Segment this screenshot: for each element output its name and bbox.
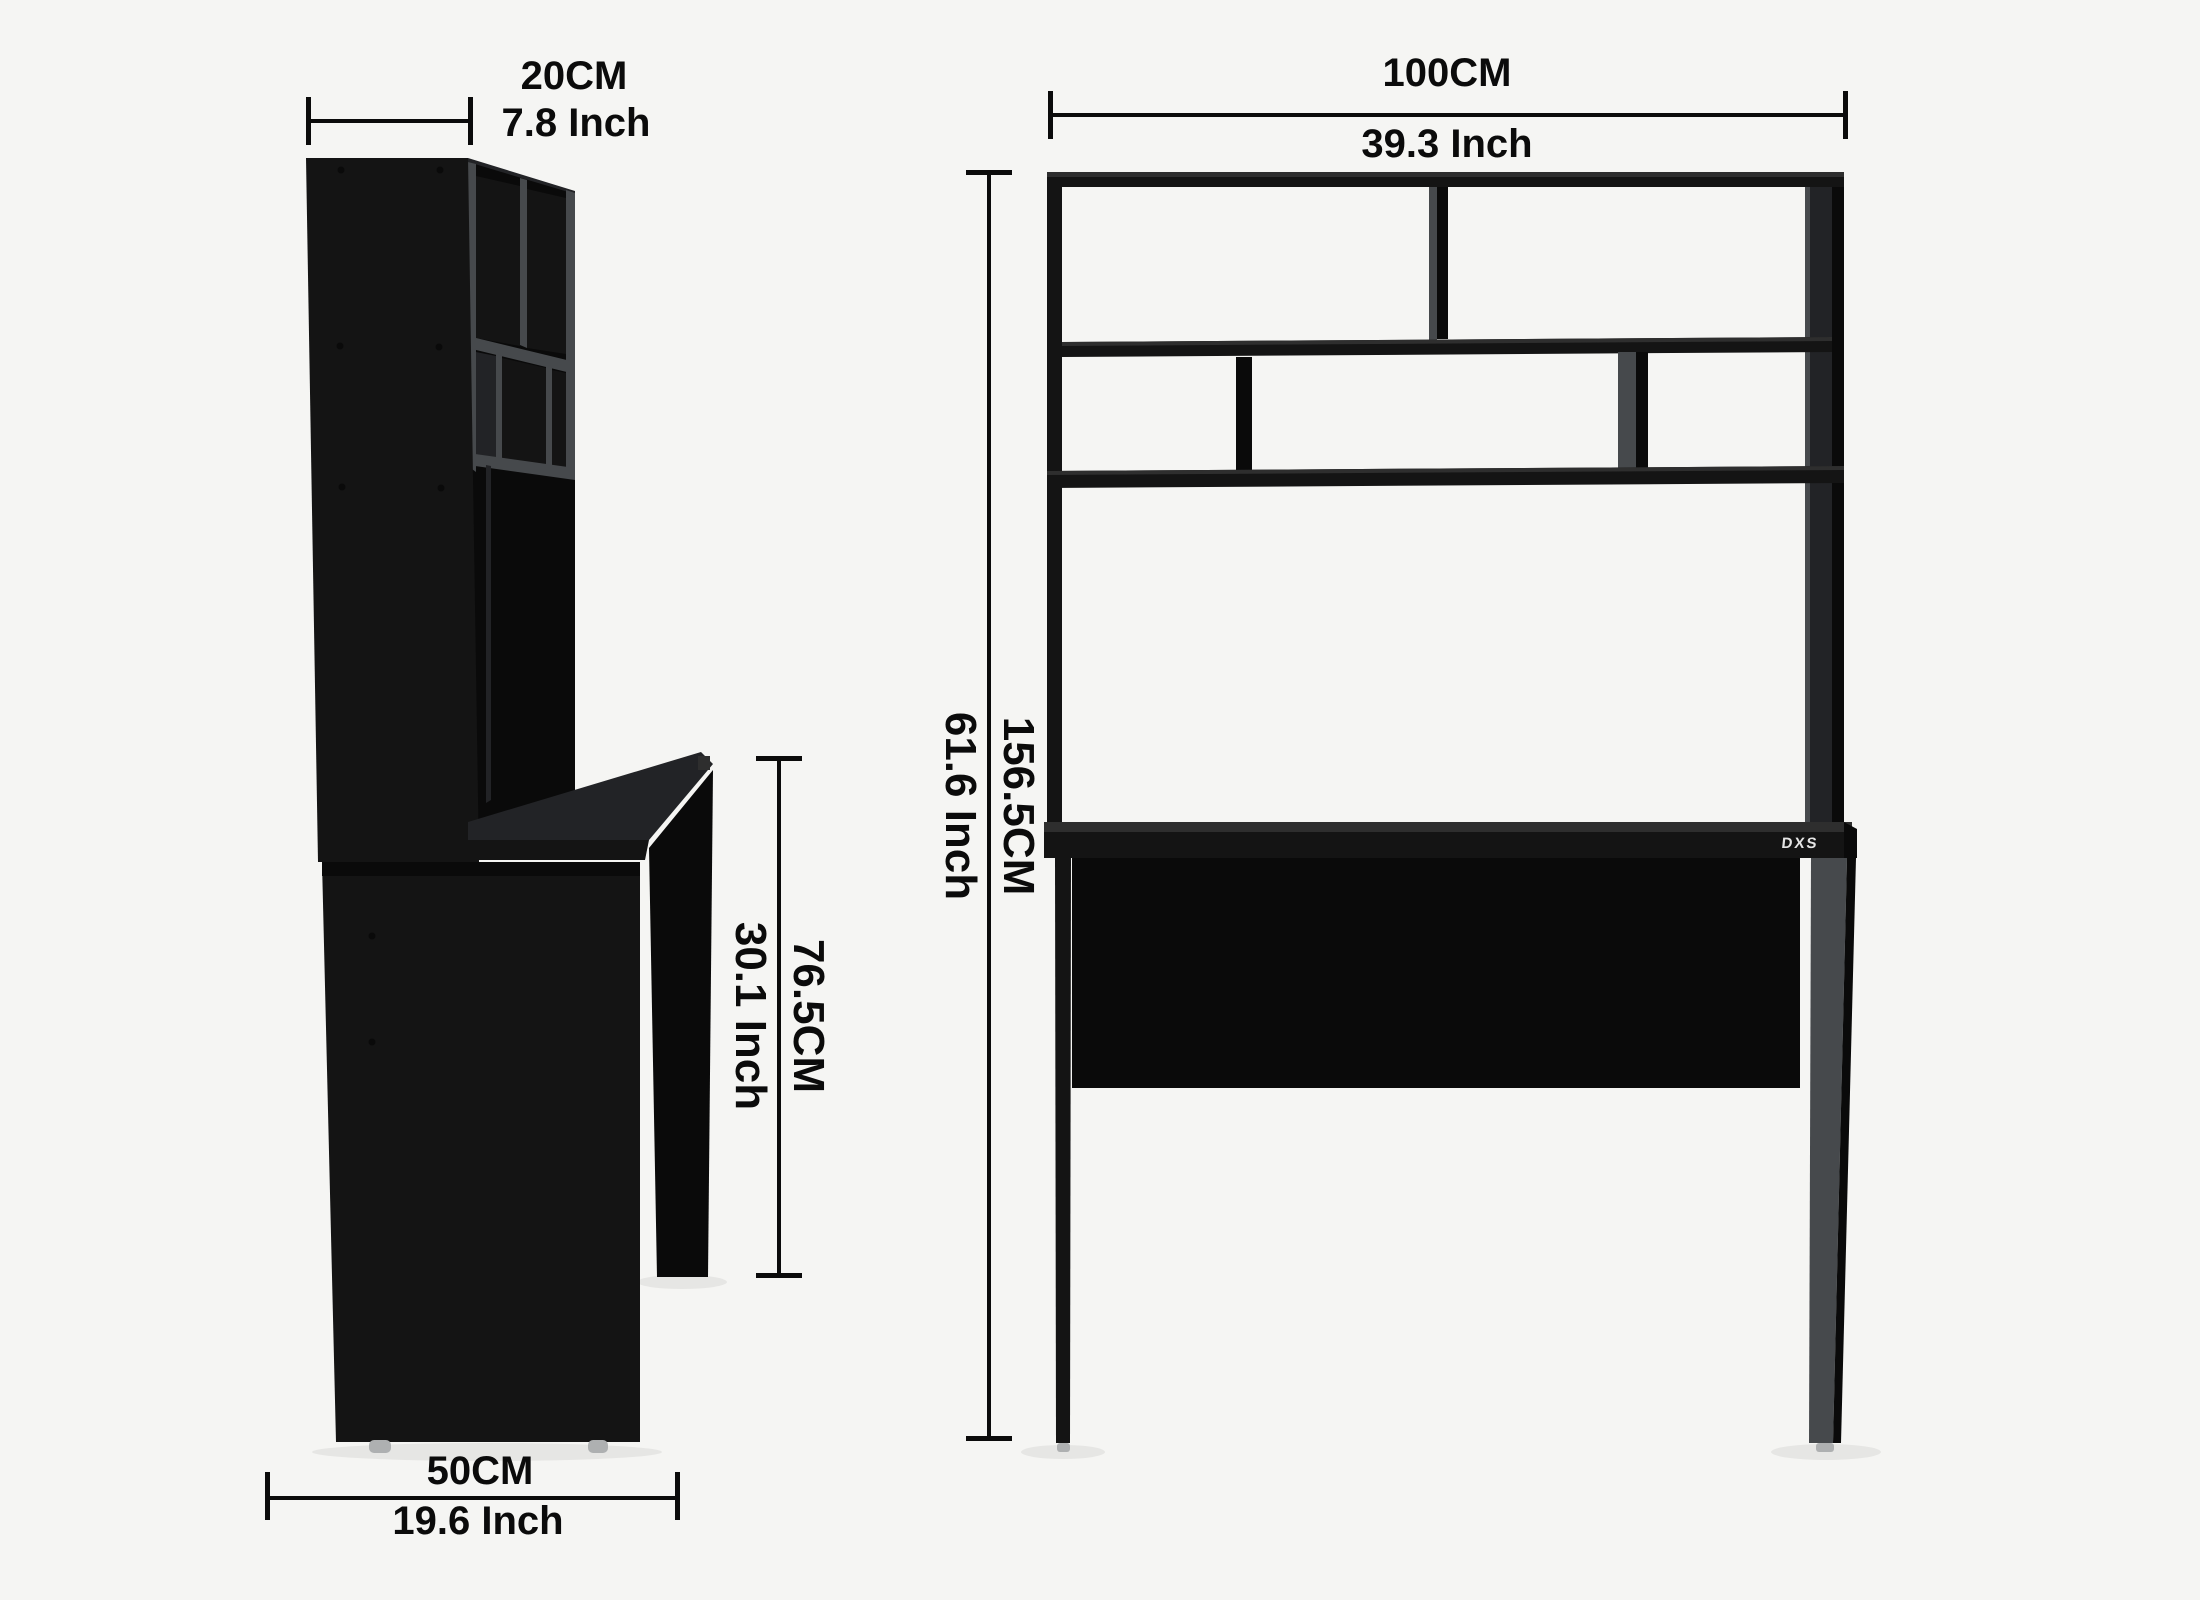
desk-top-highlight — [1044, 822, 1852, 832]
hutch-back-edge — [486, 465, 491, 803]
cubby-divider — [496, 354, 502, 464]
brand-logo: DXS — [1775, 835, 1825, 853]
front-view-illustration — [1021, 172, 1881, 1460]
top-divider — [1437, 187, 1448, 339]
hutch-side-panel — [306, 158, 479, 862]
screw-hole — [339, 484, 346, 491]
furniture-illustration — [0, 0, 2200, 1600]
cubby-opening — [552, 370, 566, 470]
dim-overall-height-inch: 61.6 Inch — [931, 712, 989, 900]
middle-divider — [1636, 352, 1648, 471]
dimension-tick — [756, 756, 802, 761]
screw-hole — [337, 343, 344, 350]
desk-rear-leg — [649, 770, 713, 1277]
storage-cabinet — [322, 862, 640, 1442]
cubby-opening — [502, 358, 546, 468]
dimension-tick — [468, 97, 473, 145]
cabinet-foot — [588, 1440, 608, 1453]
dim-hutch-depth-inch: 7.8 Inch — [502, 101, 651, 145]
screw-hole — [438, 485, 445, 492]
top-divider-side — [1429, 187, 1437, 340]
dimension-tick — [756, 1273, 802, 1278]
screw-hole — [369, 1039, 376, 1046]
dim-desk-depth-cm: 50CM — [427, 1449, 534, 1493]
dim-overall-width-inch: 39.3 Inch — [1361, 122, 1532, 166]
middle-divider-side — [1618, 352, 1636, 471]
dimension-tick — [1048, 91, 1053, 139]
desk-left-leg — [1055, 858, 1071, 1443]
dim-overall-width-cm: 100CM — [1383, 51, 1512, 95]
dimension-tick — [966, 170, 1012, 175]
dim-desk-height-label: 76.5CM 30.1 Inch — [721, 922, 837, 1110]
desk-front-edge — [468, 840, 649, 860]
leg-foot — [1816, 1443, 1834, 1452]
hutch-right-board-inner-edge — [1805, 187, 1810, 822]
modesty-panel — [1072, 858, 1800, 1088]
screw-hole — [437, 167, 444, 174]
cubby-edge — [566, 190, 575, 476]
dim-overall-height-label: 156.5CM 61.6 Inch — [931, 712, 1047, 900]
cubby-opening — [527, 189, 566, 354]
hutch-left-board — [1047, 187, 1062, 822]
side-view-illustration — [306, 158, 727, 1461]
dimension-tick — [966, 1436, 1012, 1441]
dimension-tick — [675, 1472, 680, 1520]
cubby-divider — [520, 178, 527, 348]
dimension-line — [308, 119, 470, 123]
hutch-top-highlight — [1047, 172, 1844, 177]
dim-desk-height-cm: 76.5CM — [779, 922, 837, 1110]
dim-desk-depth-inch: 19.6 Inch — [392, 1499, 563, 1543]
hutch-right-board — [1807, 187, 1832, 822]
cubby-opening — [476, 176, 520, 346]
middle-divider — [1236, 357, 1252, 471]
desk-top-end-cap — [1844, 822, 1857, 858]
leg-foot — [1057, 1443, 1070, 1452]
screw-hole — [436, 344, 443, 351]
dimension-tick — [265, 1472, 270, 1520]
hutch-right-board-outer-edge — [1832, 187, 1844, 822]
dimension-line — [1050, 113, 1845, 117]
cabinet-shadow-band — [322, 862, 640, 876]
dim-overall-height-cm: 156.5CM — [989, 712, 1047, 900]
cubby-opening — [476, 352, 496, 464]
dimension-tick — [1843, 91, 1848, 139]
dim-hutch-depth-cm: 20CM — [521, 54, 628, 98]
cubby-divider — [546, 366, 552, 469]
dim-desk-height-inch: 30.1 Inch — [721, 922, 779, 1110]
dimension-tick — [306, 97, 311, 145]
screw-hole — [338, 167, 345, 174]
desk-corner-bracket — [698, 756, 710, 770]
dimension-diagram-canvas: DXS 20CM 7.8 Inch 100CM 39.3 Inch 156.5C… — [0, 0, 2200, 1600]
cabinet-foot — [369, 1440, 391, 1453]
screw-hole — [369, 933, 376, 940]
side-leg-shadow — [637, 1275, 727, 1289]
